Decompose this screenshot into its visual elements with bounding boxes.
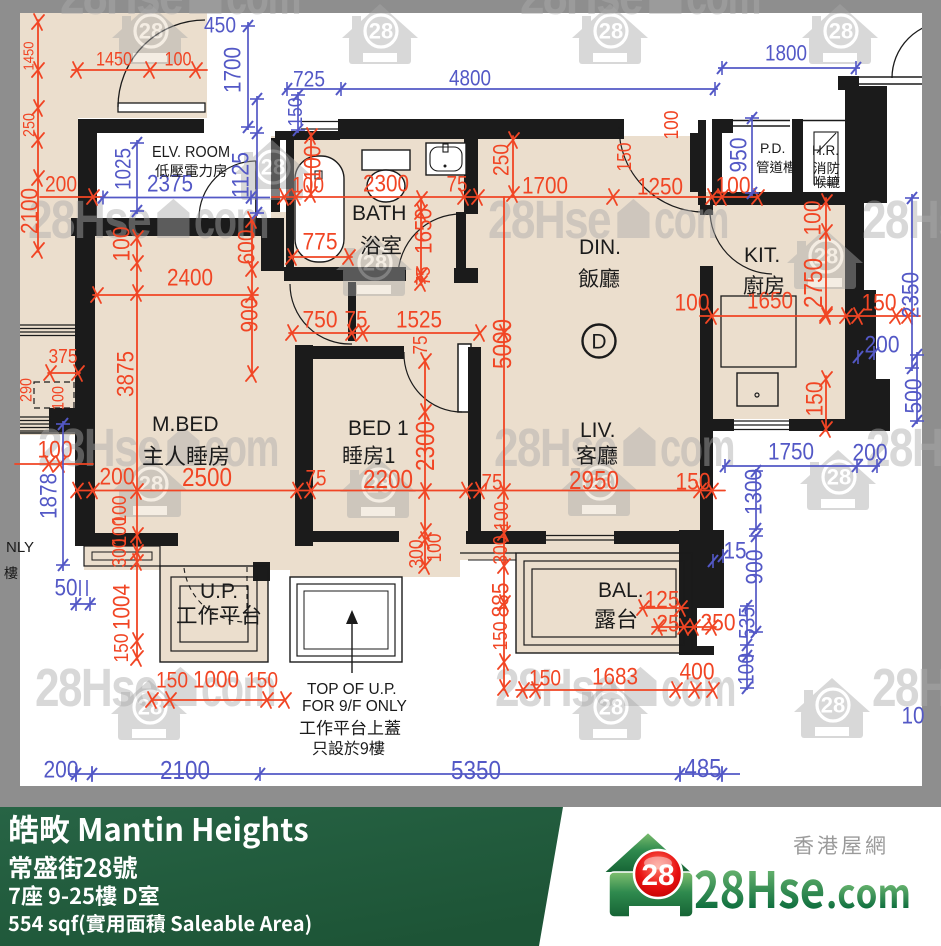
svg-text:U.P.: U.P. (200, 580, 238, 603)
svg-text:775: 775 (303, 229, 338, 256)
svg-text:485: 485 (685, 753, 722, 783)
svg-text:300: 300 (109, 539, 131, 568)
svg-text:TOP OF U.P.: TOP OF U.P. (307, 681, 397, 698)
svg-text:NLY: NLY (6, 539, 34, 556)
svg-text:150: 150 (529, 666, 561, 691)
svg-text:75: 75 (413, 267, 435, 286)
svg-text:150: 150 (490, 622, 512, 651)
svg-text:28Hse: 28Hse (862, 190, 941, 250)
svg-text:150: 150 (246, 668, 278, 693)
svg-text:400: 400 (680, 659, 715, 686)
svg-text:M.BED: M.BED (152, 413, 219, 436)
svg-text:100: 100 (491, 502, 513, 531)
svg-text:1525: 1525 (396, 307, 442, 334)
svg-text:ELV. ROOM: ELV. ROOM (152, 144, 230, 161)
svg-text:1683: 1683 (592, 664, 638, 691)
svg-text:2950: 2950 (569, 465, 619, 495)
svg-text:BED 1: BED 1 (348, 417, 409, 440)
svg-text:10: 10 (902, 703, 925, 730)
svg-text:290: 290 (17, 378, 36, 402)
svg-text:2350: 2350 (898, 272, 925, 318)
svg-text:1700: 1700 (522, 173, 568, 200)
svg-text:BAL.: BAL. (598, 579, 644, 602)
svg-text:2500: 2500 (182, 462, 232, 492)
svg-text:250: 250 (20, 113, 39, 137)
svg-text:500: 500 (901, 379, 928, 414)
svg-text:100: 100 (38, 437, 73, 464)
svg-text:750: 750 (303, 307, 338, 334)
svg-text:2300: 2300 (410, 421, 440, 471)
svg-text:BATH: BATH (352, 202, 406, 225)
svg-text:200: 200 (44, 757, 79, 784)
svg-text:100: 100 (800, 201, 827, 236)
svg-text:com: com (686, 0, 760, 26)
svg-text:1878: 1878 (36, 473, 63, 519)
svg-text:125: 125 (645, 587, 680, 614)
svg-text:535: 535 (735, 607, 760, 639)
svg-text:2750: 2750 (798, 258, 828, 308)
svg-text:150: 150 (862, 290, 897, 317)
svg-text:250: 250 (701, 610, 736, 637)
svg-text:2100: 2100 (17, 188, 44, 234)
svg-text:725: 725 (293, 67, 325, 92)
svg-text:50: 50 (55, 575, 78, 602)
svg-text:DIN.: DIN. (579, 236, 621, 259)
svg-text:200: 200 (853, 440, 888, 467)
svg-text:600: 600 (234, 230, 261, 265)
svg-text:5000: 5000 (487, 319, 517, 369)
svg-text:com: com (226, 0, 300, 26)
svg-text:1650: 1650 (411, 208, 438, 254)
svg-text:100: 100 (165, 50, 192, 71)
svg-text:900: 900 (742, 550, 769, 585)
svg-text:150: 150 (676, 469, 711, 496)
svg-text:4800: 4800 (449, 66, 491, 91)
svg-text:KIT.: KIT. (744, 244, 780, 267)
svg-text:2300: 2300 (363, 171, 409, 198)
svg-text:75: 75 (482, 470, 503, 495)
svg-text:100: 100 (734, 653, 759, 685)
svg-text:950: 950 (726, 138, 753, 173)
svg-text:100: 100 (300, 146, 327, 181)
svg-text:150: 150 (285, 98, 307, 127)
svg-text:D: D (591, 331, 606, 354)
svg-text:28: 28 (641, 859, 674, 892)
svg-text:2100: 2100 (160, 755, 210, 785)
svg-text:1125: 1125 (228, 152, 255, 198)
svg-text:150: 150 (614, 143, 636, 172)
svg-text:100: 100 (109, 227, 136, 262)
svg-text:1750: 1750 (768, 439, 814, 466)
svg-text:3875: 3875 (113, 351, 140, 397)
svg-text:450: 450 (204, 13, 236, 38)
svg-text:75: 75 (306, 466, 327, 491)
svg-text:FOR 9/F ONLY: FOR 9/F ONLY (302, 698, 407, 715)
svg-text:1650: 1650 (747, 288, 793, 315)
svg-text:P.D.: P.D. (760, 140, 785, 156)
svg-text:1700: 1700 (220, 47, 247, 93)
svg-text:75: 75 (345, 307, 368, 334)
svg-text:1000: 1000 (193, 667, 239, 694)
svg-text:150: 150 (156, 668, 188, 693)
svg-text:100: 100 (49, 386, 68, 410)
svg-text:1450: 1450 (96, 50, 132, 71)
svg-text:100: 100 (716, 173, 751, 200)
svg-text:25: 25 (657, 611, 680, 638)
svg-text:H.R.: H.R. (812, 143, 839, 158)
svg-text:150: 150 (111, 634, 133, 663)
svg-text:75: 75 (447, 172, 468, 197)
svg-text:2400: 2400 (167, 265, 213, 292)
svg-text:200: 200 (865, 332, 900, 359)
svg-text:1025: 1025 (111, 148, 136, 190)
svg-text:200: 200 (45, 172, 77, 197)
svg-text:375: 375 (49, 346, 78, 368)
svg-text:100: 100 (424, 534, 446, 563)
svg-text:1300: 1300 (741, 469, 768, 515)
svg-text:1450: 1450 (21, 42, 38, 71)
svg-text:2200: 2200 (363, 464, 413, 494)
svg-text:5350: 5350 (451, 755, 501, 785)
svg-text:100: 100 (661, 111, 683, 140)
svg-text:1800: 1800 (765, 41, 807, 66)
svg-text:LIV.: LIV. (580, 419, 615, 442)
svg-text:300: 300 (490, 536, 512, 565)
svg-text:200: 200 (100, 464, 135, 491)
svg-text:1004: 1004 (109, 584, 136, 630)
svg-text:150: 150 (802, 382, 829, 417)
svg-text:75: 75 (410, 336, 432, 355)
svg-text:100: 100 (675, 290, 710, 317)
svg-text:1250: 1250 (637, 174, 683, 201)
svg-text:900: 900 (237, 298, 264, 333)
svg-text:2375: 2375 (147, 171, 193, 198)
svg-text:250: 250 (489, 144, 514, 176)
svg-text:885: 885 (488, 583, 515, 618)
